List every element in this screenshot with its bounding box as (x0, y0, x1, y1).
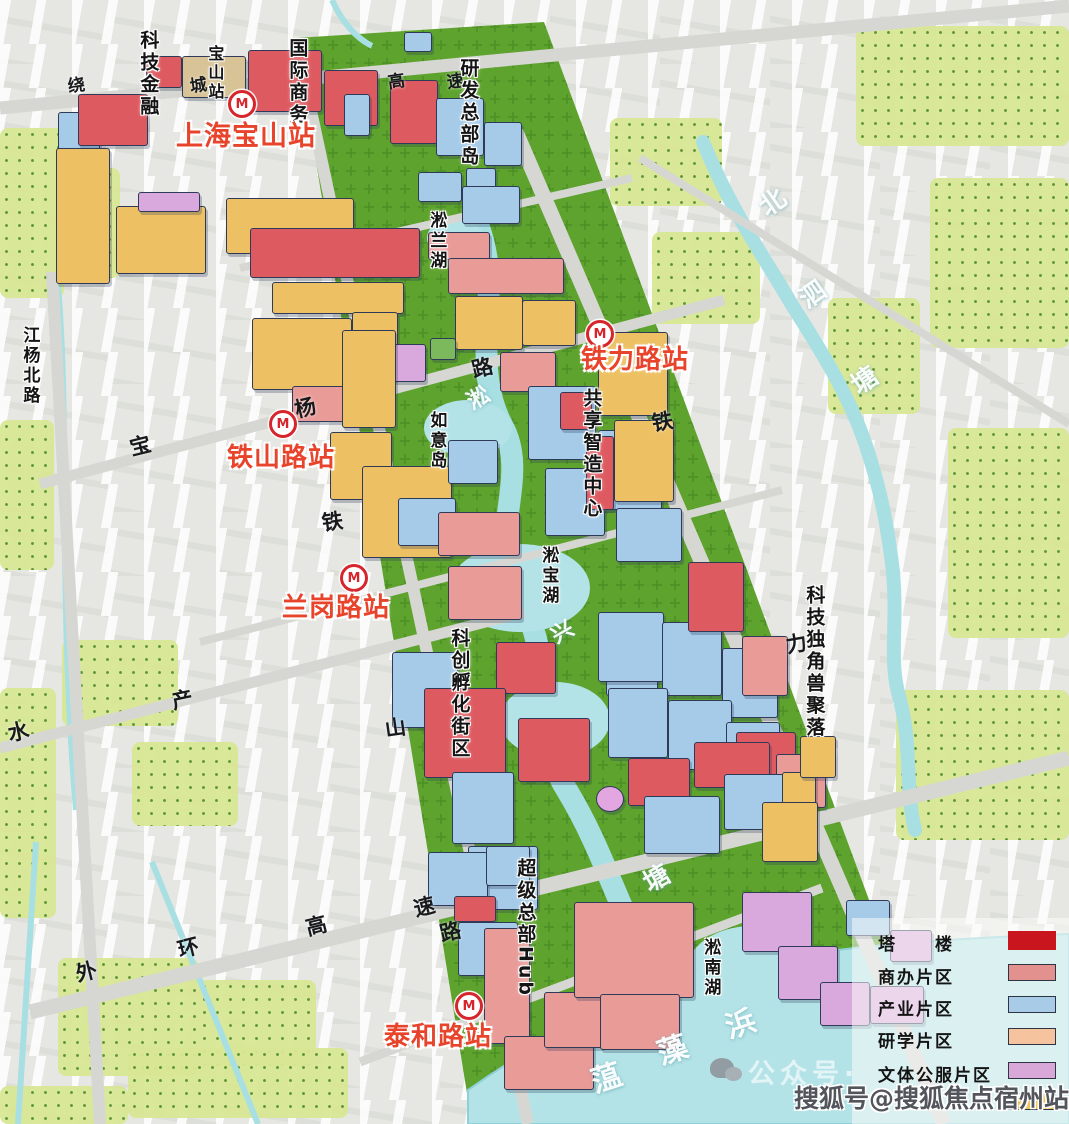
building-block (448, 258, 564, 294)
station-label: 铁山路站 (227, 445, 335, 471)
station-label: 上海宝山站 (176, 123, 316, 150)
road-label: 产 (170, 688, 195, 713)
building-block (522, 300, 576, 346)
metro-station-icon: M (586, 320, 614, 348)
metro-logo-glyph: M (463, 1000, 476, 1013)
legend-row: 研学片区 (862, 1027, 1059, 1053)
district-label: 如意岛 (427, 411, 444, 471)
building-block (248, 50, 322, 112)
building-block (574, 902, 694, 998)
district-label: 科创孵化街区 (449, 628, 468, 760)
district-label: 国际商务 (287, 38, 306, 126)
building-block (742, 892, 812, 952)
metro-station-icon: M (455, 992, 483, 1020)
district-label: 科技金融 (138, 30, 157, 118)
station-label: 泰和路站 (384, 1024, 492, 1050)
legend-label: 商办片区 (878, 963, 954, 988)
district-label: 科技独角兽聚落 (804, 585, 823, 739)
building-block (252, 318, 352, 390)
building-block (596, 786, 624, 812)
metro-logo-glyph: M (348, 572, 361, 585)
building-block (762, 802, 818, 862)
building-block (342, 330, 396, 428)
legend-label: 塔 楼 (878, 930, 954, 955)
district-label: 淞兰湖 (427, 211, 444, 271)
legend-row: 产业片区 (862, 995, 1059, 1021)
metro-logo-glyph: M (594, 328, 607, 341)
building-block (116, 206, 206, 274)
sohu-watermark: 搜狐号@搜狐焦点宿州站 (794, 1084, 1069, 1114)
building-block (455, 296, 523, 350)
building-block (462, 186, 520, 224)
district-label: 淞南湖 (701, 938, 718, 998)
building-block (448, 566, 522, 620)
road-label: 铁 (650, 410, 674, 434)
legend-label: 研学片区 (878, 1027, 954, 1052)
building-block (418, 172, 462, 202)
building-block (448, 440, 498, 484)
station-label: 铁力路站 (581, 347, 689, 373)
metro-station-icon: M (228, 90, 256, 118)
legend-label: 文体公服片区 (878, 1061, 992, 1086)
building-block (688, 562, 744, 632)
legend-swatch (1008, 1028, 1056, 1045)
legend-swatch (1008, 996, 1056, 1013)
building-block (344, 94, 370, 136)
road-label: 铁 (321, 511, 345, 535)
building-block (454, 896, 496, 922)
building-block (430, 338, 456, 360)
building-block (662, 622, 722, 696)
metro-station-icon: M (340, 564, 368, 592)
legend-swatch (1008, 931, 1056, 950)
building-block (518, 718, 590, 782)
district-label: 江杨北路 (20, 326, 37, 406)
building-block (644, 796, 720, 854)
legend-swatch (1008, 1062, 1056, 1079)
metro-logo-glyph: M (277, 418, 290, 431)
district-label: 共享智造中心 (581, 388, 600, 520)
building-block (452, 772, 514, 844)
metro-logo-glyph: M (236, 98, 249, 111)
district-label: 超级总部Hub (515, 858, 534, 998)
building-block (742, 636, 788, 696)
road-label: 高 (387, 73, 406, 92)
building-block (496, 642, 556, 694)
building-block (608, 688, 668, 758)
building-block (544, 992, 604, 1048)
building-block (272, 282, 404, 314)
building-block (438, 512, 520, 556)
building-block (598, 612, 664, 682)
station-label: 兰岗路站 (282, 595, 390, 621)
road-label: 水 (6, 720, 31, 745)
building-block (616, 508, 682, 562)
map-canvas: 塔 楼商办片区产业片区研学片区文体公服片区 公众号· 搜狐号@搜狐焦点宿州站 绕… (0, 0, 1069, 1124)
district-label: 宝山站 (206, 45, 222, 102)
metro-station-icon: M (269, 410, 297, 438)
legend-swatch (1008, 964, 1056, 981)
district-label: 淞宝湖 (539, 546, 556, 606)
legend-row: 商办片区 (862, 963, 1059, 989)
building-block (138, 192, 200, 212)
road-label: 绕 (67, 77, 86, 96)
building-block (250, 228, 420, 278)
building-block (800, 736, 836, 778)
building-block (484, 122, 522, 166)
building-block (404, 32, 432, 52)
road-label: 山 (384, 717, 408, 741)
district-label: 研发总部岛 (458, 58, 477, 168)
legend-label: 产业片区 (878, 995, 954, 1020)
building-block (56, 148, 110, 284)
legend-row: 塔 楼 (862, 930, 1059, 956)
wechat-icon (710, 1058, 744, 1086)
